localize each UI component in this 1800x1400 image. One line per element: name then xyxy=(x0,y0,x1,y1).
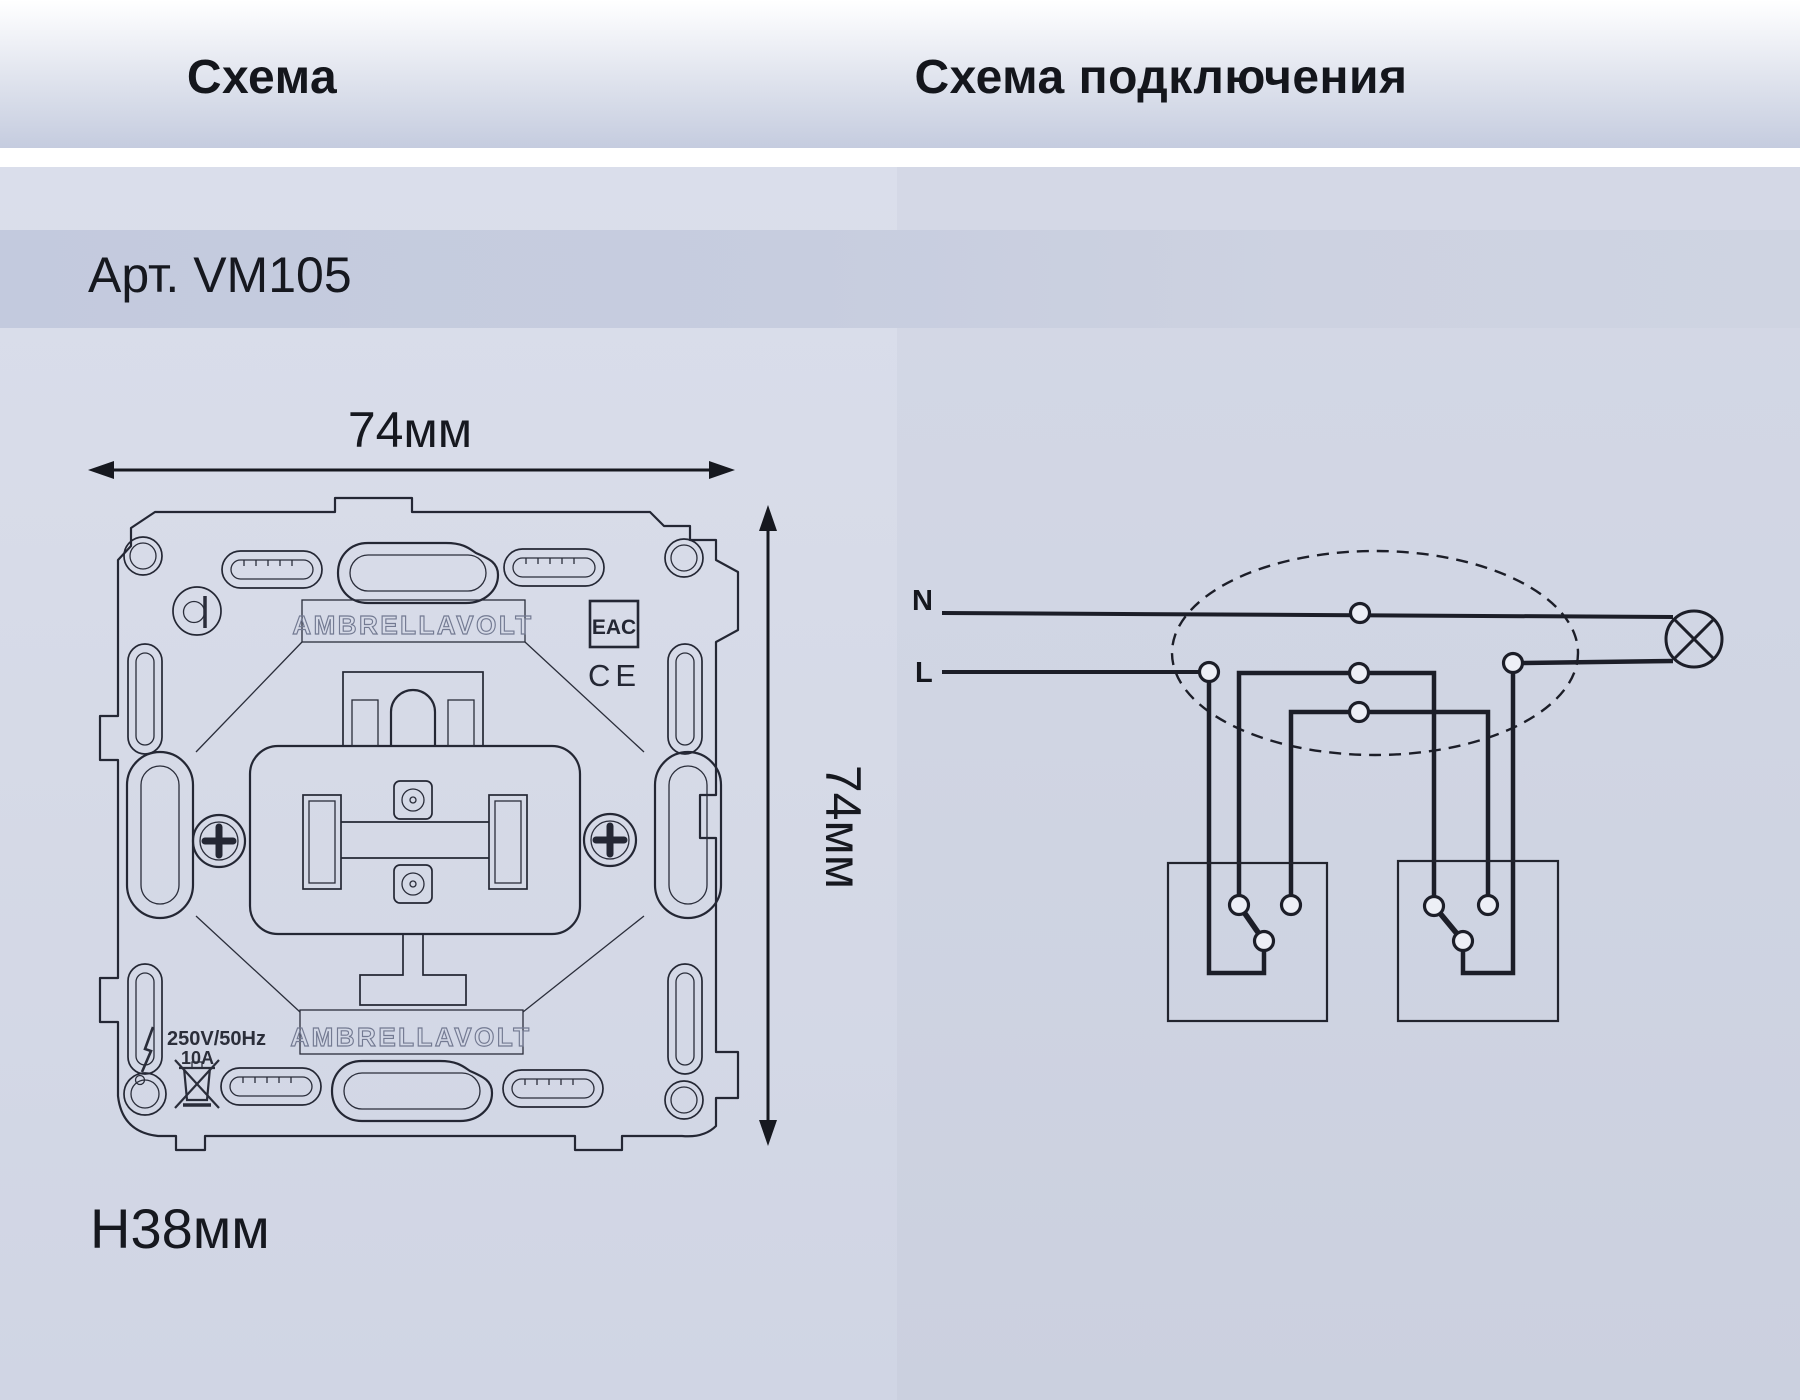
current-rating: 10A xyxy=(181,1048,214,1068)
keyhole-slot xyxy=(127,752,193,918)
claw-slot xyxy=(128,644,162,754)
wiring-diagram: N L xyxy=(900,340,1800,1300)
adjust-slot xyxy=(338,543,498,603)
left-section-title: Схема xyxy=(187,50,337,105)
neutral-label: N xyxy=(912,585,933,617)
claw-slot xyxy=(668,644,702,754)
claw-slot xyxy=(128,964,162,1074)
line-label: L xyxy=(915,657,933,689)
article-label: Арт. VM105 xyxy=(88,246,352,304)
switch-2-box xyxy=(1398,861,1558,1021)
claw-slot xyxy=(503,1070,603,1107)
mounting-hole xyxy=(124,537,162,575)
switch-body xyxy=(250,672,580,1005)
brand-logo-icon xyxy=(173,587,221,635)
ce-mark: CE xyxy=(588,658,641,693)
claw-slot xyxy=(221,1068,321,1105)
svg-text:EAC: EAC xyxy=(592,616,636,639)
connection-terminals xyxy=(1200,604,1523,951)
width-dimension: 74мм xyxy=(88,402,735,479)
height-note: H38мм xyxy=(90,1196,270,1261)
height-dimension-label: 74мм xyxy=(815,765,871,889)
weee-bin-icon xyxy=(175,1060,219,1108)
claw-slot xyxy=(668,964,702,1074)
voltage-rating: 250V/50Hz xyxy=(167,1028,266,1050)
height-dimension: 74мм xyxy=(759,505,871,1146)
article-band: Арт. VM105 xyxy=(0,230,1800,328)
eac-mark: EAC xyxy=(590,601,638,647)
lamp-icon xyxy=(1666,611,1722,667)
right-section-title: Схема подключения xyxy=(914,50,1407,105)
switch-1-box xyxy=(1168,863,1327,1021)
keyhole-slot xyxy=(655,752,721,918)
engraving-frames xyxy=(196,600,644,1054)
traveller-wires xyxy=(1209,661,1673,973)
claw-slot xyxy=(222,551,322,588)
mechanism-drawing: 74мм 74мм xyxy=(0,340,900,1300)
mounting-hole xyxy=(665,1081,703,1119)
side-screw-icon xyxy=(193,815,245,867)
width-dimension-label: 74мм xyxy=(348,402,472,458)
page-header: Схема Схема подключения xyxy=(0,0,1800,148)
claw-slot xyxy=(504,549,604,586)
mounting-hole xyxy=(665,539,703,577)
side-screw-icon xyxy=(584,814,636,866)
brand-engraving-bottom: AMBRELLAVOLT xyxy=(290,1022,531,1052)
lightning-icon xyxy=(136,1027,154,1085)
adjust-slot xyxy=(332,1061,492,1121)
brand-engraving-top: AMBRELLAVOLT xyxy=(292,610,533,640)
